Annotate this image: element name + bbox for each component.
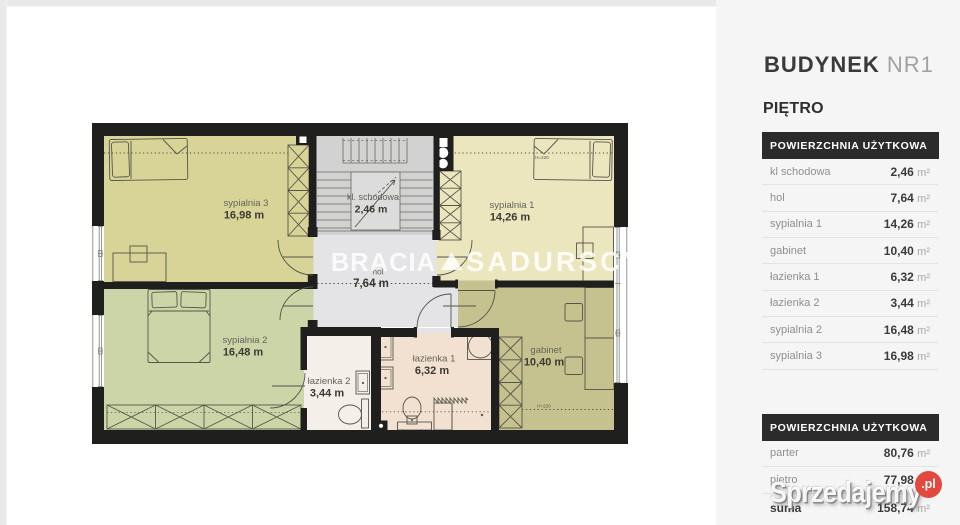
svg-text:łazienka 2: łazienka 2	[308, 376, 351, 387]
svg-text:3,44 m: 3,44 m	[310, 388, 344, 400]
svg-text:H=220: H=220	[537, 404, 551, 409]
svg-text:14,26 m: 14,26 m	[490, 212, 531, 224]
svg-text:gabinet: gabinet	[530, 345, 562, 356]
svg-text:H=220: H=220	[535, 155, 549, 160]
svg-text:2,46 m: 2,46 m	[355, 204, 388, 216]
svg-text:16,48 m: 16,48 m	[223, 347, 264, 359]
svg-text:sypialnia 1: sypialnia 1	[490, 200, 535, 211]
svg-text:7,64 m: 7,64 m	[353, 278, 389, 290]
svg-text:10,40 m: 10,40 m	[524, 357, 565, 369]
svg-text:SADURSCY: SADURSCY	[466, 246, 644, 277]
svg-text:BRACIA: BRACIA	[331, 249, 436, 277]
svg-text:sypialnia 2: sypialnia 2	[223, 335, 268, 346]
svg-text:sypialnia 3: sypialnia 3	[224, 198, 269, 209]
svg-text:łazienka 1: łazienka 1	[413, 354, 456, 365]
svg-text:kl. schodowa: kl. schodowa	[347, 192, 399, 202]
svg-text:16,98 m: 16,98 m	[224, 210, 265, 222]
svg-text:6,32 m: 6,32 m	[415, 365, 449, 377]
